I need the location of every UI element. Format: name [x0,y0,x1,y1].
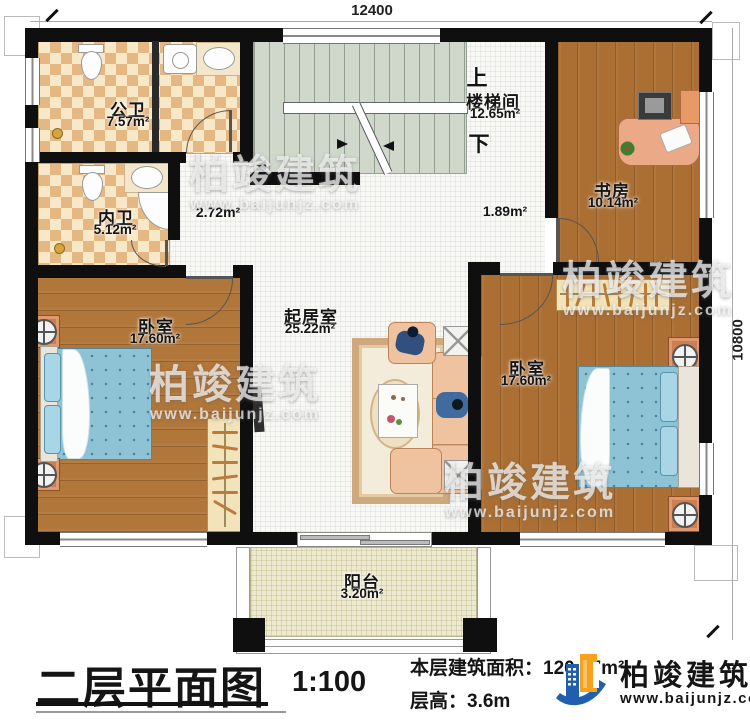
monitor-screen [645,98,664,113]
sliding-door-panel [360,540,430,545]
window [699,443,714,495]
washing-machine [163,44,197,74]
hall-area: 2.72m² [196,204,240,220]
wall [240,41,253,163]
wall [250,172,360,185]
window [699,92,714,218]
room-area: 17.60m² [130,331,180,346]
wall [240,265,253,532]
sliding-door [297,532,432,547]
pillow [44,405,61,454]
stair-direction-arrow [383,141,394,151]
room-area: 10.14m² [588,195,638,210]
top-dimension-line [30,21,712,22]
wall [207,532,297,545]
corner-leader-box [712,22,740,60]
wardrobe [556,279,670,311]
floor-height-text: 层高：3.6m [410,686,510,713]
wall [440,28,712,42]
stairs-down-label: 下 [469,128,490,158]
coffee-table [378,384,418,438]
balcony-column [463,618,497,652]
wall [553,262,712,275]
dimension-tick [699,11,712,24]
stair-handrail [283,102,468,114]
table-lamp [672,502,698,528]
plan-scale: 1:100 [292,666,366,699]
person-sitting [436,392,468,418]
title-underline-thin [36,711,286,713]
room-area: 7.57m² [107,114,150,129]
room-area: 12.65m² [470,106,520,121]
wall [430,532,468,545]
right-dimension-label: 10800 [730,319,747,361]
title-underline [36,702,268,706]
floor-drain [52,128,63,139]
room-area: 25.22m² [285,321,335,336]
wardrobe-rail [560,293,666,295]
computer-monitor [638,92,672,120]
room-area: 3.20m² [341,586,384,601]
person-head [452,399,463,410]
table-cup [391,395,396,400]
wall [25,265,186,278]
wall [665,532,712,545]
wall [25,152,186,163]
washing-machine-drum [172,52,189,69]
floor-plan: 12400 10800 [0,0,750,723]
window [25,128,40,162]
window [520,532,665,547]
stair-direction-arrow [337,139,348,149]
window [25,58,40,105]
balcony-railing [236,639,491,654]
table-flowers [396,419,402,425]
sofa-armchair [390,448,442,494]
top-dimension-label: 12400 [351,2,393,19]
wall [25,28,38,545]
wall [233,152,253,163]
sink [131,166,163,189]
wall [25,28,283,42]
window [60,532,207,547]
bed-headboard [678,366,700,488]
wall [545,28,558,218]
pillow [660,426,678,476]
room-area: 17.60m² [501,373,551,388]
brand-url: www.baijunjz.com [620,690,750,707]
sink [203,47,235,70]
bath-partition-wall [152,41,159,152]
balcony-column [233,618,265,652]
building-swoosh-icon [550,648,614,712]
pillow [660,372,678,422]
table-cup [401,397,405,401]
hall-area: 1.89m² [483,203,527,219]
pillow [44,353,61,402]
window [283,28,440,44]
side-cabinet [680,90,700,124]
floor-drain [54,243,65,254]
stair-entry-arrow [256,160,266,170]
wall [480,262,500,275]
wall [168,163,180,240]
desk-plant [620,141,635,156]
brand-name: 柏竣建筑 [620,652,750,694]
room-area: 5.12m² [94,222,137,237]
table-flowers [387,415,395,423]
brand-logo-icon [550,648,614,712]
plan-title: 二层平面图 [36,652,266,716]
wall [468,262,481,545]
dimension-tick [706,625,719,638]
wall [25,532,60,545]
